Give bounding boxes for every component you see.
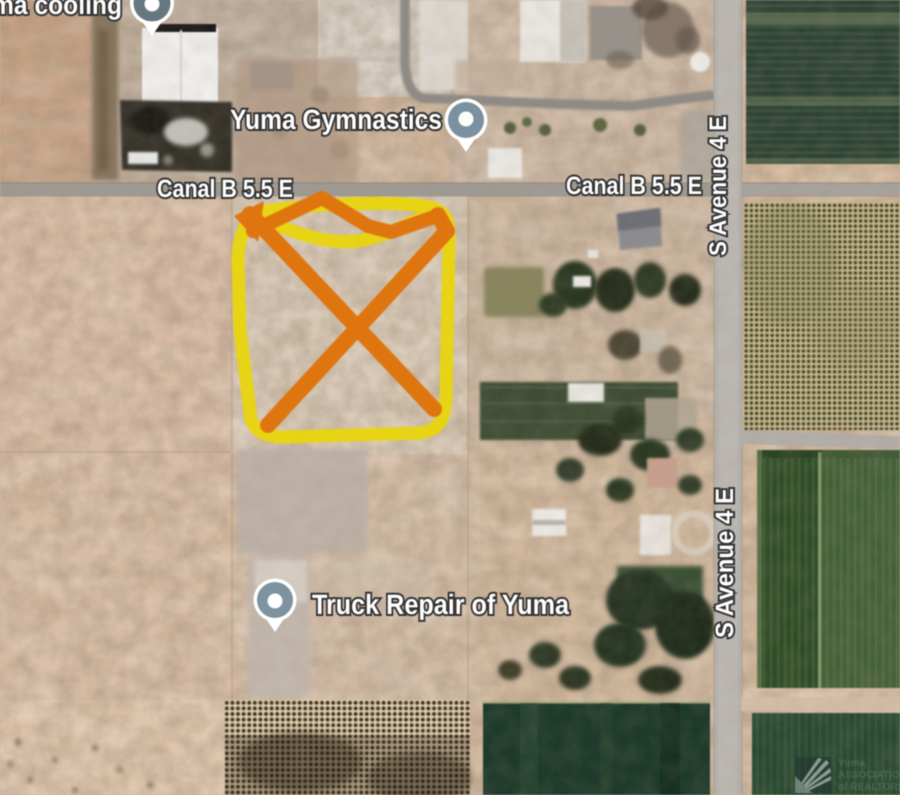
svg-text:of REALTORS: of REALTORS: [838, 782, 900, 793]
svg-text:ASSOCIATION: ASSOCIATION: [838, 770, 900, 781]
svg-text:Truck Repair of Yuma: Truck Repair of Yuma: [312, 589, 569, 620]
svg-text:ma cooling: ma cooling: [0, 0, 122, 20]
svg-text:Yuma: Yuma: [838, 758, 865, 769]
svg-text:Yuma Gymnastics: Yuma Gymnastics: [230, 104, 442, 135]
svg-text:S Avenue 4 E: S Avenue 4 E: [705, 116, 732, 256]
svg-text:Canal B 5.5 E: Canal B 5.5 E: [566, 172, 702, 200]
svg-text:S Avenue 4 E: S Avenue 4 E: [711, 488, 739, 638]
svg-text:Canal B 5.5 E: Canal B 5.5 E: [157, 175, 293, 203]
